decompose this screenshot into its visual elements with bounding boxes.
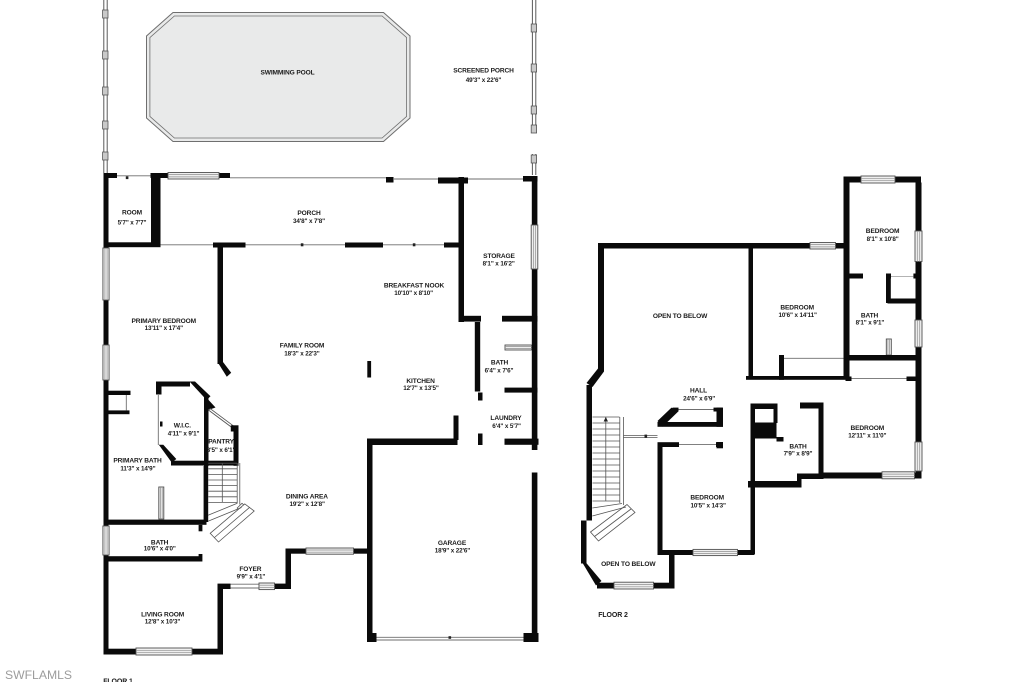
svg-text:GARAGE: GARAGE bbox=[438, 540, 467, 547]
svg-text:W.I.C.: W.I.C. bbox=[174, 423, 192, 430]
svg-text:7'9" x 8'9": 7'9" x 8'9" bbox=[784, 451, 813, 458]
svg-text:FLOOR 2: FLOOR 2 bbox=[598, 612, 628, 619]
svg-text:19'2" x 12'8": 19'2" x 12'8" bbox=[289, 501, 325, 508]
svg-text:BEDROOM: BEDROOM bbox=[690, 495, 724, 502]
svg-text:5'7" x 7'7": 5'7" x 7'7" bbox=[118, 219, 147, 226]
svg-text:12'8" x 10'3": 12'8" x 10'3" bbox=[145, 619, 181, 626]
svg-text:3'5" x 6'1": 3'5" x 6'1" bbox=[207, 447, 236, 454]
svg-text:18'9" x 22'6": 18'9" x 22'6" bbox=[435, 548, 471, 555]
svg-text:BATH: BATH bbox=[861, 313, 879, 320]
svg-text:6'4" x 5'7": 6'4" x 5'7" bbox=[492, 423, 521, 430]
svg-text:STORAGE: STORAGE bbox=[483, 253, 515, 260]
svg-text:10'5" x 14'3": 10'5" x 14'3" bbox=[690, 502, 726, 509]
svg-text:PANTRY: PANTRY bbox=[208, 439, 234, 446]
svg-text:34'8" x 7'8": 34'8" x 7'8" bbox=[293, 218, 325, 225]
svg-text:4'11" x 9'1": 4'11" x 9'1" bbox=[168, 430, 200, 437]
svg-text:FLOOR 1: FLOOR 1 bbox=[103, 678, 133, 682]
svg-text:10'10" x 8'10": 10'10" x 8'10" bbox=[394, 290, 433, 297]
svg-text:LAUNDRY: LAUNDRY bbox=[490, 415, 522, 422]
svg-text:OPEN TO BELOW: OPEN TO BELOW bbox=[601, 561, 656, 568]
svg-text:BREAKFAST NOOK: BREAKFAST NOOK bbox=[384, 282, 445, 289]
svg-text:BEDROOM: BEDROOM bbox=[780, 304, 814, 311]
svg-text:BEDROOM: BEDROOM bbox=[866, 228, 900, 235]
svg-text:24'6" x 6'9": 24'6" x 6'9" bbox=[683, 395, 715, 402]
svg-text:8'1" x 16'2": 8'1" x 16'2" bbox=[483, 260, 515, 267]
svg-text:12'7" x 13'5": 12'7" x 13'5" bbox=[403, 385, 439, 392]
svg-text:12'11" x 11'0": 12'11" x 11'0" bbox=[848, 432, 886, 439]
svg-text:LIVING ROOM: LIVING ROOM bbox=[141, 611, 185, 618]
svg-text:49'3" x 22'6": 49'3" x 22'6" bbox=[466, 77, 502, 84]
svg-text:8'1" x 10'8": 8'1" x 10'8" bbox=[867, 236, 899, 243]
svg-text:FOYER: FOYER bbox=[239, 566, 261, 573]
svg-text:OPEN TO BELOW: OPEN TO BELOW bbox=[653, 313, 708, 320]
svg-text:18'3" x 22'3": 18'3" x 22'3" bbox=[284, 351, 320, 358]
svg-text:FAMILY ROOM: FAMILY ROOM bbox=[280, 343, 325, 350]
svg-text:6'4" x 7'6": 6'4" x 7'6" bbox=[485, 368, 514, 375]
svg-text:DINING AREA: DINING AREA bbox=[286, 493, 328, 500]
svg-text:SCREENED PORCH: SCREENED PORCH bbox=[453, 67, 514, 74]
svg-text:PORCH: PORCH bbox=[297, 210, 321, 217]
svg-text:HALL: HALL bbox=[690, 388, 707, 395]
svg-text:13'11" x 17'4": 13'11" x 17'4" bbox=[145, 325, 184, 332]
svg-text:SWIMMING POOL: SWIMMING POOL bbox=[260, 69, 314, 76]
svg-text:SWFLAMLS: SWFLAMLS bbox=[5, 668, 72, 682]
svg-text:KITCHEN: KITCHEN bbox=[406, 378, 435, 385]
svg-text:PRIMARY BATH: PRIMARY BATH bbox=[113, 457, 162, 464]
svg-text:8'1" x 9'1": 8'1" x 9'1" bbox=[856, 320, 885, 327]
svg-text:BATH: BATH bbox=[491, 360, 509, 367]
svg-text:ROOM: ROOM bbox=[122, 210, 143, 217]
svg-text:11'3" x 14'9": 11'3" x 14'9" bbox=[120, 466, 155, 473]
svg-text:10'6" x 14'11": 10'6" x 14'11" bbox=[778, 312, 817, 319]
svg-text:BEDROOM: BEDROOM bbox=[851, 425, 885, 432]
svg-text:9'9" x 4'1": 9'9" x 4'1" bbox=[237, 574, 266, 581]
svg-text:10'6" x 4'0": 10'6" x 4'0" bbox=[144, 546, 176, 553]
